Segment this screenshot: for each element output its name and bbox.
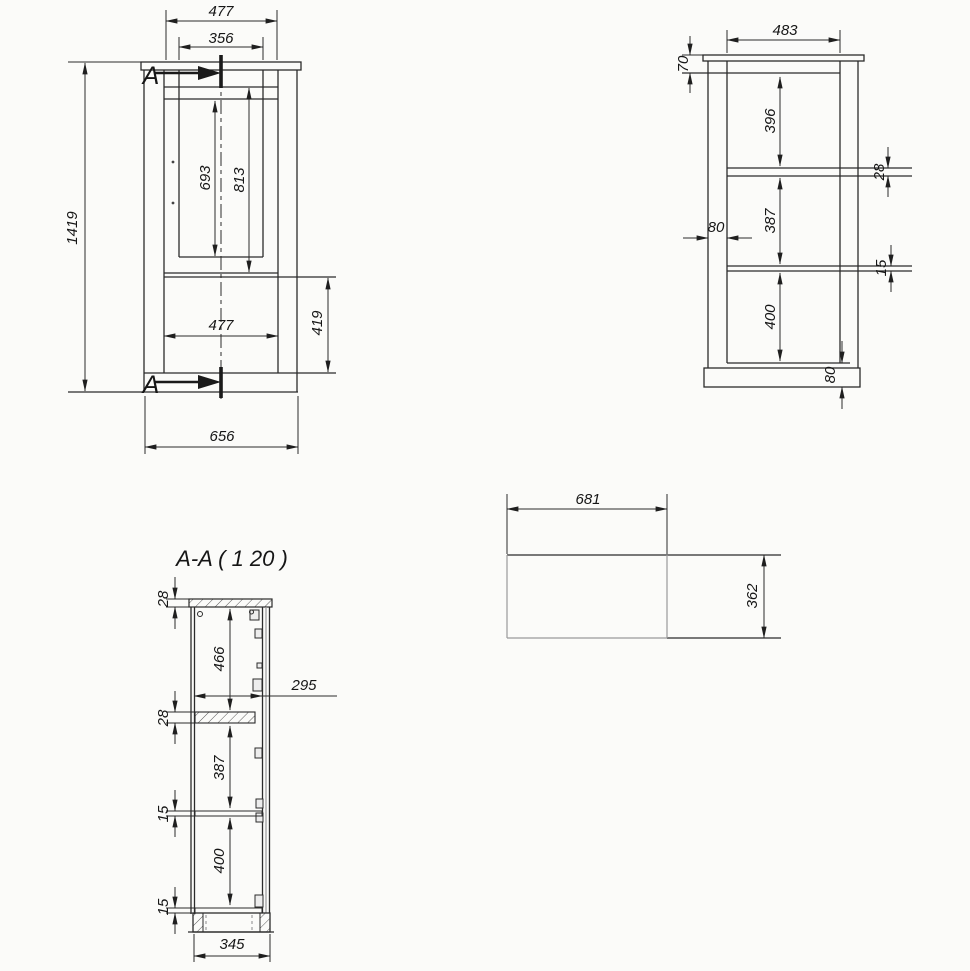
- dim-section-top-thickness: 28: [155, 590, 172, 608]
- dim-front-door-height: 419: [309, 310, 326, 336]
- section-cut-mark-bottom: [155, 367, 221, 398]
- dim-side-top-rail: 70: [675, 55, 692, 72]
- dim-side-space-bottom: 400: [762, 304, 779, 330]
- section-label-a-bottom: A: [141, 371, 160, 399]
- dim-section-shelf-thickness: 28: [155, 709, 172, 727]
- dim-section-space-mid: 387: [211, 755, 228, 781]
- dim-section-space-top: 466: [211, 646, 228, 672]
- section-label-a-top: A: [141, 62, 160, 90]
- dim-front-overall-height: 1419: [64, 211, 81, 245]
- dim-front-niche-height: 813: [231, 167, 248, 193]
- dim-plan-depth: 362: [744, 583, 761, 609]
- plan-view: 681 362: [507, 491, 781, 638]
- dim-side-shelf-top-thickness: 28: [871, 163, 888, 181]
- dim-section-plinth-width: 345: [219, 936, 245, 953]
- dim-side-shelf-mid-thickness: 15: [873, 259, 890, 276]
- dim-section-space-bottom: 400: [211, 848, 228, 874]
- dim-front-opening-width: 356: [208, 30, 234, 47]
- section-title: A-A ( 1 20 ): [174, 546, 288, 571]
- section-view: A-A ( 1 20 ) 28 466 295 28 387 15 400 15…: [155, 546, 337, 962]
- dim-side-space-top: 396: [762, 108, 779, 134]
- side-view: 483 70 396 28 80 387 15 400 80: [675, 22, 912, 409]
- dim-section-shelf2-thickness: 15: [155, 805, 172, 822]
- dim-front-top-width: 477: [208, 3, 234, 20]
- dim-side-plinth-height: 80: [822, 366, 839, 383]
- dim-plan-width: 681: [575, 491, 600, 508]
- dim-side-inset: 80: [708, 219, 725, 236]
- dim-section-bottom-thickness: 15: [155, 898, 172, 915]
- dim-side-space-mid: 387: [762, 208, 779, 234]
- front-view: 477 356 693 813 1419 477 419 656 A A: [64, 3, 336, 454]
- dim-side-top-width: 483: [772, 22, 798, 39]
- dim-front-door-width: 477: [208, 317, 234, 334]
- cad-drawing-sheet: 477 356 693 813 1419 477 419 656 A A: [0, 0, 970, 971]
- section-cut-mark-top: [155, 55, 221, 88]
- dim-section-depth: 295: [290, 677, 317, 694]
- dim-front-overall-width: 656: [209, 428, 235, 445]
- drawing-linework: 477 356 693 813 1419 477 419 656 A A: [0, 0, 970, 971]
- dim-front-opening-height: 693: [197, 165, 214, 191]
